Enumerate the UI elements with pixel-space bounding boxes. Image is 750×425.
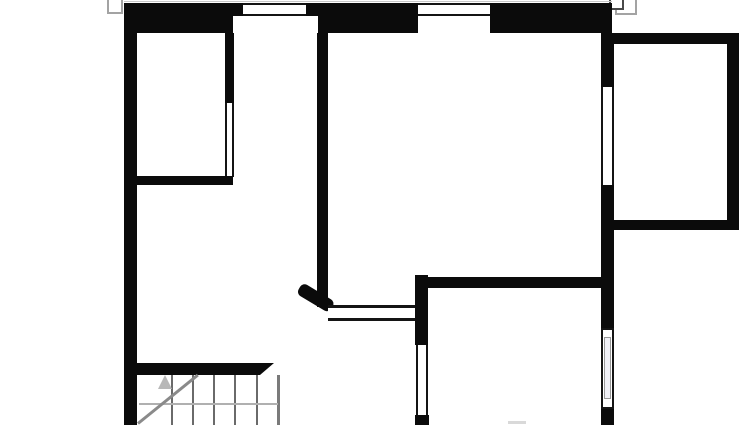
closet-wall-horizontal	[137, 176, 233, 185]
exterior-wall-left	[124, 3, 137, 425]
annex-wall-bottom	[613, 220, 739, 230]
bottom-edge-smudge	[508, 421, 526, 424]
closet-glass-partition	[225, 103, 234, 177]
exterior-wall-top-thin-b	[306, 3, 318, 16]
stair-tread-3	[213, 375, 215, 425]
stair-tread-2	[192, 375, 194, 425]
hall-glass-partition	[328, 305, 415, 321]
interior-wall-horizontal	[415, 277, 614, 288]
top-edge-line	[124, 1, 612, 2]
window-top-left	[243, 3, 306, 16]
exterior-wall-top-thin-a	[233, 3, 243, 16]
stair-wall	[137, 363, 260, 375]
closet-wall-vertical	[225, 33, 234, 103]
mid-wall-sill-block	[415, 415, 429, 425]
exterior-wall-right-lower	[601, 409, 614, 425]
stair-tread-4	[234, 375, 236, 425]
floor-plan-canvas	[0, 0, 750, 425]
window-top-right	[418, 3, 490, 16]
stair-wall-tip	[260, 363, 274, 375]
exterior-wall-top-left	[124, 3, 233, 33]
window-right-framed-inner	[604, 337, 611, 399]
window-right-upper	[601, 87, 614, 185]
window-mid-lower	[416, 345, 428, 415]
stair-up-arrow	[158, 375, 172, 389]
center-partition-wall	[317, 33, 328, 307]
exterior-wall-top-center	[318, 3, 418, 33]
exterior-wall-right-mid	[601, 185, 614, 328]
roof-outline-left	[107, 0, 123, 14]
annex-wall-right	[727, 33, 739, 230]
stair-right-edge-line	[277, 375, 280, 425]
annex-wall-top	[604, 33, 739, 44]
exterior-wall-top-right	[490, 3, 612, 33]
stair-tread-5	[256, 375, 258, 425]
